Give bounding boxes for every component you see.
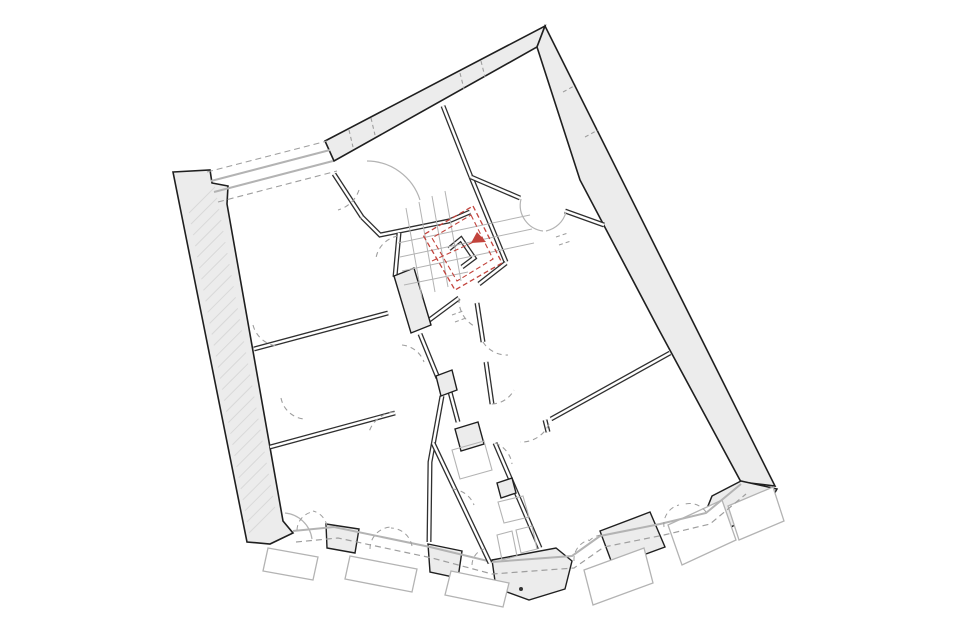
west-window-arc-2: [281, 398, 304, 419]
stair-tread-4: [445, 191, 461, 281]
north-wall-band: [325, 26, 545, 161]
wall-spine-mid-core: [420, 334, 438, 378]
pillar-spine-mid: [436, 370, 457, 396]
wall-divider-core: [551, 353, 670, 419]
wall-midleft-top-core: [254, 313, 388, 349]
wall-stair-south-b-core: [479, 263, 506, 284]
stair-flight-line-2: [400, 229, 532, 257]
wall-midleft-bottom-core: [270, 413, 395, 447]
stair-direction-arrow: [471, 232, 486, 243]
window-0-arc-b: [313, 511, 327, 526]
floor-plan-canvas: [0, 0, 971, 621]
midleft-door-arc: [402, 345, 424, 362]
stair-threshold-2: [455, 318, 466, 322]
east-wall-band: [537, 26, 775, 486]
stair-tread-2: [419, 202, 435, 292]
wall-bath-west-core: [433, 443, 490, 563]
ne-room-door-arc: [483, 342, 508, 355]
pillar-bath-mid: [497, 478, 516, 498]
ne-threshold-2: [559, 241, 571, 245]
floor-plan-svg: [0, 0, 971, 621]
wall-partition-top-core: [443, 106, 471, 177]
window-sill-2: [345, 556, 417, 592]
window-sill-1: [263, 548, 318, 580]
west-wall-band: [173, 170, 293, 544]
wall-spine-low-core: [450, 392, 458, 422]
wall-roomA-left-core: [334, 174, 362, 217]
double-door-leaf-right: [546, 212, 566, 231]
double-door-leaf-left: [520, 199, 543, 231]
stair-south-door-arc: [459, 298, 476, 327]
pillar-bath-top: [455, 422, 484, 451]
pillar-spine-top: [394, 268, 431, 333]
se-hall-door-arc: [492, 390, 514, 404]
wall-stair-south-a-core: [428, 298, 459, 321]
window-4-arc-a: [574, 540, 589, 561]
stair-threshold-1: [452, 311, 463, 315]
window-sill-5: [668, 500, 736, 565]
roomA-door-leaf-arc: [367, 161, 420, 200]
facade-survey-dot: [519, 587, 523, 591]
ne-threshold-1: [556, 233, 568, 237]
window-0-arc-a: [297, 512, 312, 530]
